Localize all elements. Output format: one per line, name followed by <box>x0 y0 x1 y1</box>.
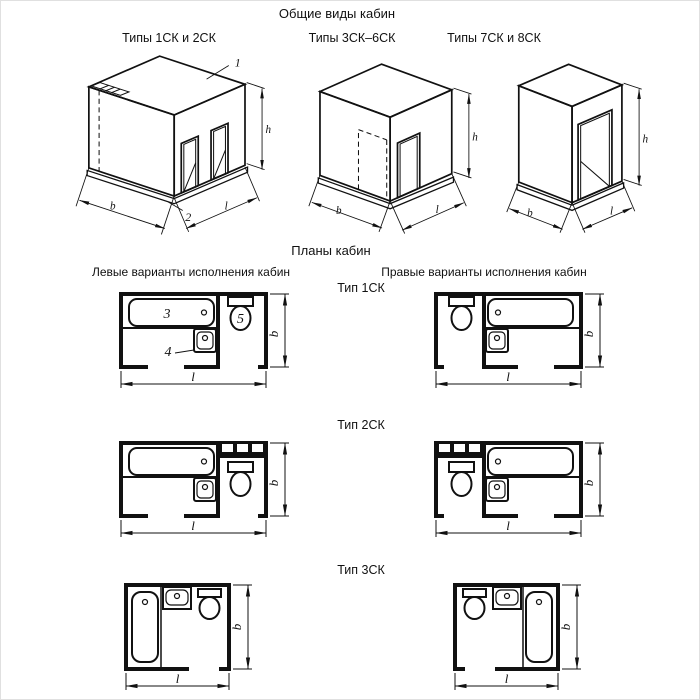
left-face <box>519 86 572 203</box>
bathtub-drain <box>202 310 207 315</box>
washbasin <box>163 587 191 609</box>
bathtub <box>123 448 216 477</box>
washbasin <box>194 329 216 352</box>
dimension-b: b <box>558 585 581 669</box>
toilet <box>463 589 486 619</box>
iso-title-3sk-6sk: Типы 3СК–6СК <box>309 31 396 45</box>
cabin-body <box>517 64 624 210</box>
callout-2-label: 2 <box>185 210 191 224</box>
toilet <box>228 462 253 496</box>
callout-1-label: 1 <box>235 55 241 69</box>
dim-l-label: l <box>506 369 510 384</box>
washbasin <box>486 478 508 501</box>
dimension-h: h <box>453 88 478 178</box>
dim-b-label: b <box>229 623 244 630</box>
dimension-b: b <box>229 585 252 669</box>
dim-l-label: l <box>176 671 180 686</box>
washbasin-tap <box>175 594 180 599</box>
dim-b-label: b <box>110 201 116 213</box>
bathtub-drain <box>143 600 148 605</box>
toilet-bowl <box>200 597 220 619</box>
washbasin <box>194 478 216 501</box>
iso-view-types-3sk-6sk: h l b <box>296 59 486 237</box>
roof-face <box>320 64 452 117</box>
dim-b-label: b <box>581 330 596 337</box>
right-variants-header: Правые варианты исполнения кабин <box>381 265 587 279</box>
dim-l-label: l <box>505 671 509 686</box>
dimension-b: b <box>76 168 174 235</box>
callout-4-label: 4 <box>165 345 172 360</box>
iso-view-types-7sk-8sk: h l b <box>493 59 658 238</box>
iso-view-types-1sk-2sk: 1 2 h l b <box>59 51 274 237</box>
left-variants-header: Левые варианты исполнения кабин <box>92 265 290 279</box>
toilet <box>198 589 221 619</box>
washbasin-tap <box>203 336 208 341</box>
drawing-sheet: Общие виды кабин Типы 1СК и 2СК Типы 3СК… <box>0 0 700 700</box>
dimension-l: l <box>121 369 266 388</box>
dim-b-label: b <box>266 330 281 337</box>
plans-section-title: Планы кабин <box>291 243 370 258</box>
dim-l-label: l <box>506 518 510 533</box>
iso-title-1sk-2sk: Типы 1СК и 2СК <box>122 31 216 45</box>
front-face <box>390 90 452 201</box>
cabin-room-mirrored <box>453 583 560 671</box>
dim-b-label: b <box>266 479 281 486</box>
cabin-body <box>87 56 247 204</box>
dimension-l: l <box>436 518 581 537</box>
plan-3sk-right: b l <box>447 578 607 698</box>
washbasin <box>486 329 508 352</box>
page-title: Общие виды кабин <box>279 6 395 21</box>
callout-3-label: 3 <box>163 307 171 322</box>
bathtub <box>486 448 579 477</box>
dim-h-label: h <box>643 133 649 145</box>
dimension-l: l <box>126 671 229 690</box>
dim-l-label: l <box>225 201 228 213</box>
door-opening-front <box>578 110 612 200</box>
callout-4: 4 <box>165 345 195 360</box>
front-face <box>572 85 622 203</box>
iso-title-7sk-8sk: Типы 7СК и 8СК <box>447 31 541 45</box>
callout-2: 2 <box>168 202 191 224</box>
plan-2sk-right: b l <box>428 436 613 540</box>
toilet-cistern <box>198 589 221 597</box>
dim-l-label: l <box>610 206 613 218</box>
toilet <box>449 297 474 330</box>
vent-block <box>434 441 486 458</box>
roof-face <box>519 64 622 106</box>
door-opening-front <box>398 133 420 198</box>
dimension-l: l <box>455 671 558 690</box>
dimension-b: b <box>581 443 604 516</box>
dimension-b: b <box>266 443 289 516</box>
type-label-3sk: Тип 3СК <box>337 563 385 577</box>
cabin-room-mirrored <box>434 441 583 518</box>
dimension-h: h <box>624 83 649 185</box>
callout-5-label: 5 <box>237 312 244 327</box>
plan-1sk-left: 3 4 5 b l <box>113 287 298 391</box>
type-label-2sk: Тип 2СК <box>337 418 385 432</box>
dim-h-label: h <box>472 131 478 143</box>
dim-l-label: l <box>191 518 195 533</box>
plan-2sk-left: b l <box>113 436 298 540</box>
dim-l-label: l <box>191 369 195 384</box>
dimension-l: l <box>436 369 581 388</box>
dimension-b: b <box>266 294 289 367</box>
vent-block <box>216 441 268 458</box>
type-label-1sk: Тип 1СК <box>337 281 385 295</box>
dim-l-label: l <box>436 204 439 216</box>
bathtub <box>132 592 158 662</box>
front-face <box>174 84 245 196</box>
door-opening-left <box>181 136 198 193</box>
washbasin <box>493 587 521 609</box>
bathtub <box>526 592 552 662</box>
door-opening-right <box>211 123 228 180</box>
cabin-body <box>318 64 453 209</box>
dim-b-label: b <box>581 479 596 486</box>
door-hidden-left <box>358 130 386 200</box>
plan-1sk-right: b l <box>428 287 613 391</box>
dim-h-label: h <box>265 124 271 136</box>
dimension-h: h <box>247 83 272 170</box>
dim-b-label: b <box>527 207 533 219</box>
left-face <box>320 92 390 202</box>
toilet <box>449 462 474 496</box>
dimension-l: l <box>121 518 266 537</box>
dim-b-label: b <box>558 623 573 630</box>
plan-3sk-left: b l <box>118 578 278 698</box>
base-slab <box>87 167 247 204</box>
bathtub <box>486 299 579 328</box>
dim-b-label: b <box>336 205 342 217</box>
dimension-b: b <box>581 294 604 367</box>
callout-1: 1 <box>207 55 241 79</box>
cabin-room-mirrored <box>434 292 583 369</box>
roof-face <box>89 56 245 115</box>
toilet-cistern <box>228 297 253 306</box>
